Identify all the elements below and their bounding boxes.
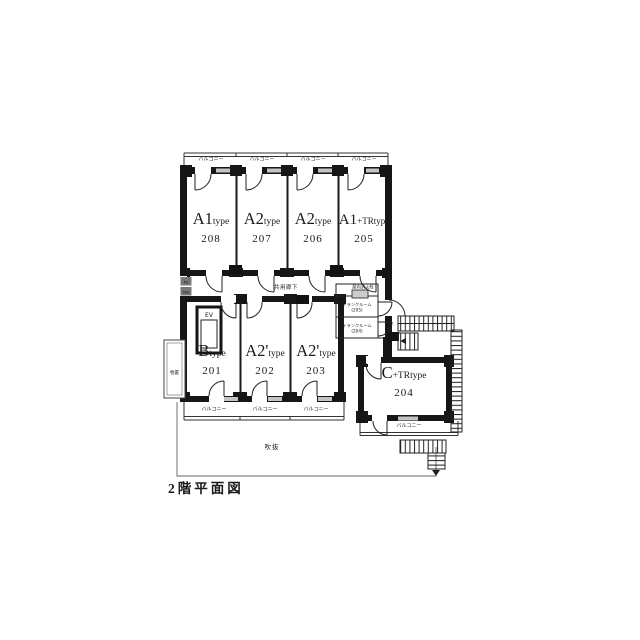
unit-number-208: 208	[201, 233, 221, 245]
floorplan-drawing: EV 屋内消火栓 トランクルーム (205) トランクルーム (204) MB …	[0, 0, 640, 640]
trunk-room-number: (204)	[351, 329, 363, 334]
page-title: 2階平面図	[168, 480, 244, 496]
mb-label: MB	[299, 298, 305, 303]
unit-label-207: A2type	[244, 209, 281, 228]
balcony-label: バルコニー	[250, 157, 275, 163]
unit-label-204: C+TRtype	[382, 363, 427, 382]
balcony-label: バルコニー	[202, 407, 227, 413]
hydrant-label: 屋内消火栓	[352, 284, 374, 291]
unit-label-202: A2'type	[245, 341, 285, 360]
unit-label-208: A1type	[193, 209, 230, 228]
storage-label: 物置	[170, 369, 179, 376]
trunk-room-number: (205)	[351, 308, 363, 313]
unit-label-206: A2type	[295, 209, 332, 228]
balcony-label: バルコニー	[199, 157, 224, 163]
unit-number-206: 206	[303, 233, 323, 245]
unit-number-203: 203	[306, 365, 326, 377]
unit-number-205: 205	[354, 233, 374, 245]
storage-box: 物置	[164, 340, 185, 398]
balcony-label: バルコニー	[397, 423, 422, 429]
unit-number-207: 207	[252, 233, 272, 245]
balcony-label: バルコニー	[304, 407, 329, 413]
elevator-label: EV	[205, 312, 214, 319]
balcony-rails	[184, 153, 458, 436]
balcony-label: バルコニー	[301, 157, 326, 163]
roof-outline	[177, 402, 436, 476]
unit-number-202: 202	[255, 365, 275, 377]
balcony-label: バルコニー	[352, 157, 377, 163]
unit-number-201: 201	[202, 365, 222, 377]
void-label: 吹抜	[265, 442, 280, 451]
unit-label-203: A2'type	[296, 341, 336, 360]
balcony-label: バルコニー	[253, 407, 278, 413]
mb-label: MB	[390, 335, 396, 340]
mb-label: MB	[333, 268, 339, 273]
unit-number-204: 204	[394, 387, 414, 399]
corridor-label: 共用廊下	[274, 283, 298, 291]
mb-label: MB	[232, 268, 238, 273]
mb-label: MB	[183, 290, 189, 295]
unit-label-205: A1+TRtype	[339, 212, 389, 228]
ps-label: PS	[184, 280, 189, 285]
floorplan-page: EV 屋内消火栓 トランクルーム (205) トランクルーム (204) MB …	[0, 0, 640, 640]
